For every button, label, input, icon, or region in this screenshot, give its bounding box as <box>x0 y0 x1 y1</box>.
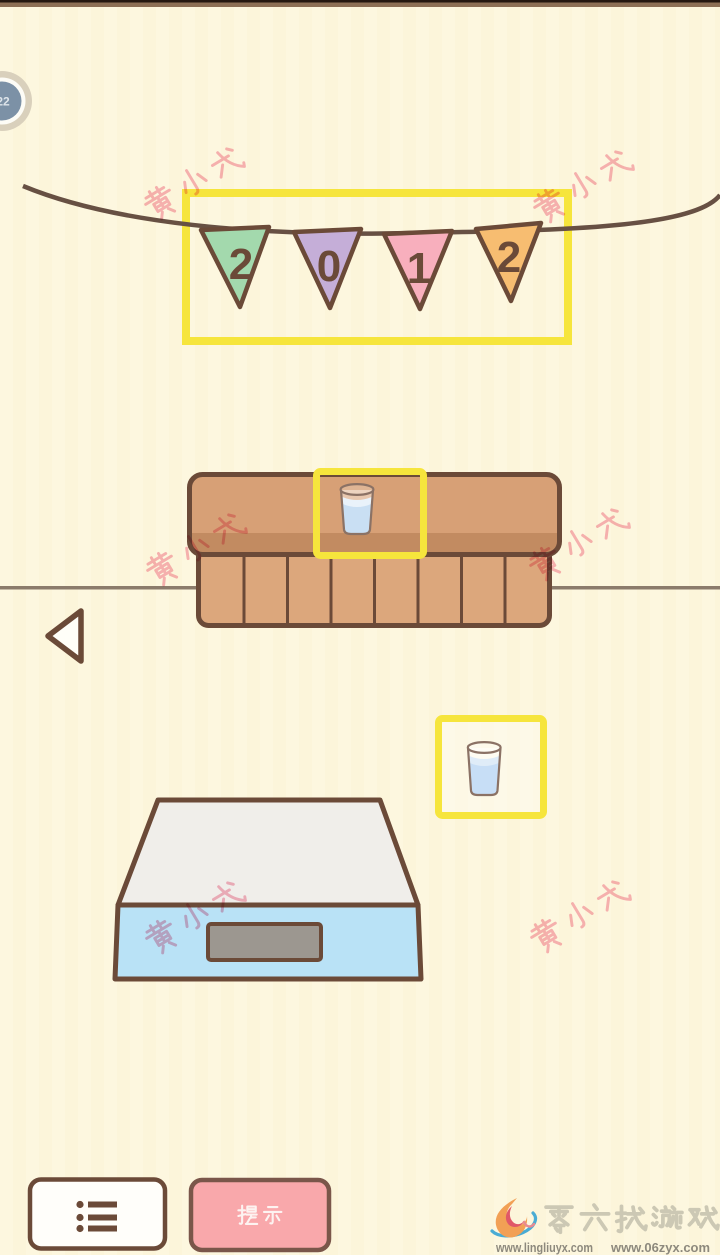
svg-text:2: 2 <box>229 240 253 289</box>
svg-text:2: 2 <box>497 233 521 282</box>
svg-text:www.lingliuyx.com: www.lingliuyx.com <box>495 1240 593 1255</box>
svg-text:0: 0 <box>317 242 341 291</box>
svg-text:www.06zyx.com: www.06zyx.com <box>610 1240 710 1255</box>
svg-text:1: 1 <box>407 244 431 293</box>
svg-text:22: 22 <box>0 95 10 109</box>
